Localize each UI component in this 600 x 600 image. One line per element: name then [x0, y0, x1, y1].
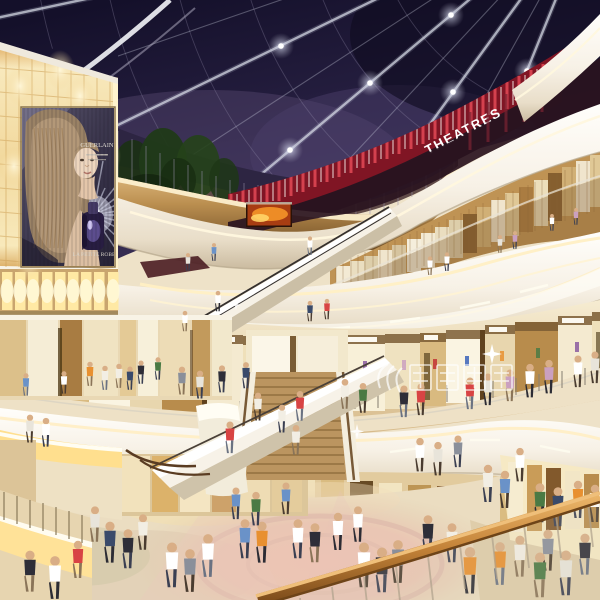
svg-text:LA PETITE ROBE: LA PETITE ROBE [73, 252, 116, 258]
svg-text:GUERLAIN: GUERLAIN [80, 142, 114, 149]
